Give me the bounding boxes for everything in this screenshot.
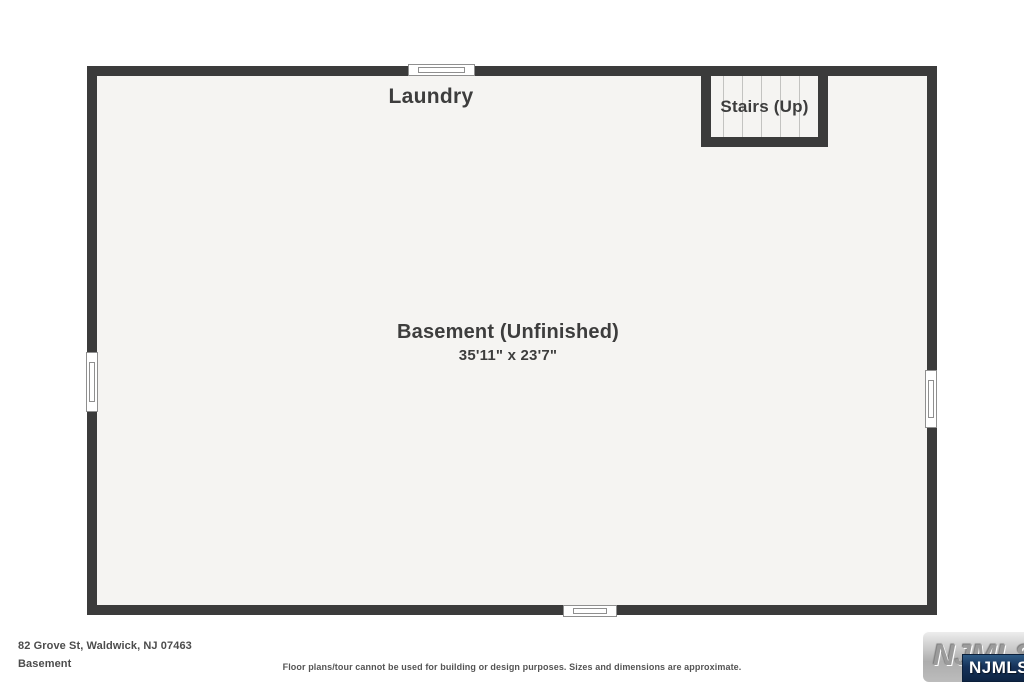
floor-plan-page: Stairs (Up) Laundry Basement (Unfinished… <box>0 0 1024 682</box>
laundry-label: Laundry <box>331 85 531 109</box>
njmls-logo-badge: NJMLS <box>962 654 1024 682</box>
window-glass <box>89 362 95 402</box>
window-marker-bottom <box>563 605 617 617</box>
stairs-label: Stairs (Up) <box>718 97 810 117</box>
window-marker-top <box>408 64 475 76</box>
stairs-room: Stairs (Up) <box>701 76 828 147</box>
window-glass <box>573 608 607 614</box>
basement-room-dimensions: 35'11" x 23'7" <box>308 347 708 364</box>
basement-label-block: Basement (Unfinished) 35'11" x 23'7" <box>308 321 708 364</box>
window-marker-left <box>86 352 98 412</box>
njmls-logo-badge-text: NJMLS <box>963 658 1024 678</box>
basement-room-name: Basement (Unfinished) <box>308 321 708 344</box>
floor-name: Basement <box>18 658 71 670</box>
disclaimer-text: Floor plans/tour cannot be used for buil… <box>262 662 762 672</box>
window-marker-right <box>925 370 937 428</box>
window-glass <box>928 380 934 418</box>
property-address: 82 Grove St, Waldwick, NJ 07463 <box>18 640 192 652</box>
window-glass <box>418 67 465 73</box>
